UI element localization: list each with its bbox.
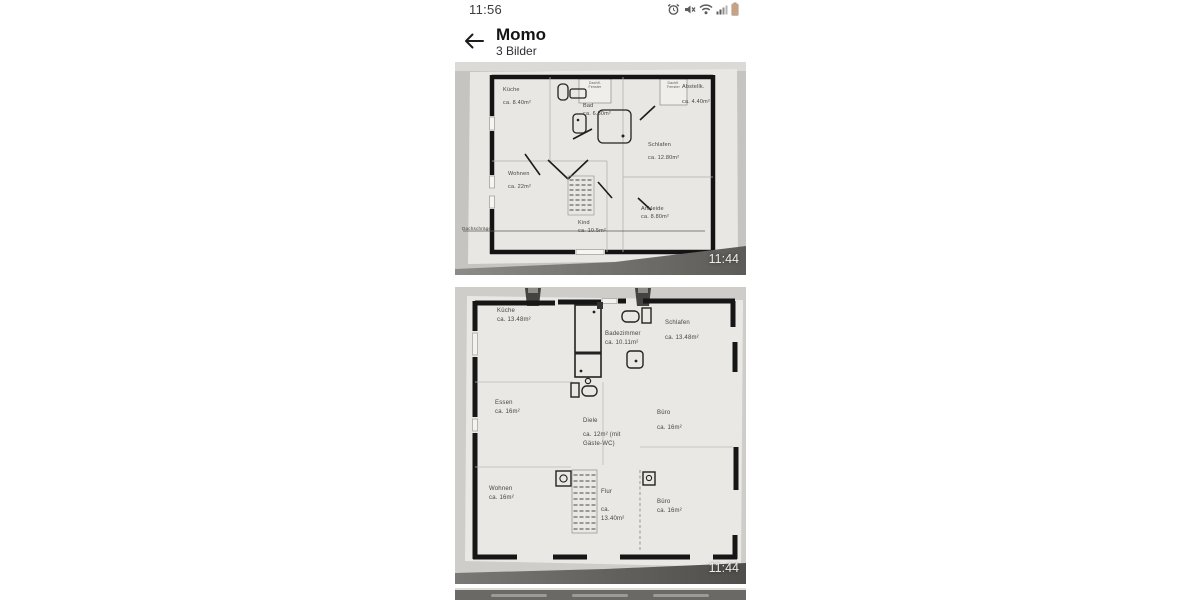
conversation-title: Momo <box>496 25 546 44</box>
back-button[interactable] <box>462 29 486 53</box>
room-label-schlafen-2: Schlafenca. 13.48m² <box>665 319 699 343</box>
roof-window-label-1: Dachfl.Fenster <box>581 81 609 90</box>
room-label-kueche-1: Kücheca. 8.40m² <box>503 86 531 108</box>
room-label-diele: Dieleca. 12m² (mitGäste-WC) <box>583 417 621 449</box>
message-timestamp-1: 11:44 <box>709 252 739 266</box>
conversation-subtitle: 3 Bilder <box>496 44 546 58</box>
photo-top-edge <box>455 588 746 590</box>
conversation-info[interactable]: Momo 3 Bilder <box>496 25 546 58</box>
room-label-abstell: Abstellk.ca. 4.40m² <box>682 83 710 107</box>
status-icons <box>667 2 739 16</box>
chat-header: Momo 3 Bilder <box>455 22 746 60</box>
phone-screen: 11:56 <box>455 0 746 600</box>
battery-icon <box>731 2 739 16</box>
room-label-ankleide: Ankleideca. 8.80m² <box>641 205 669 222</box>
status-bar: 11:56 <box>455 0 746 18</box>
room-label-kueche-2: Kücheca. 13.48m² <box>497 307 531 325</box>
photo-detail-bar <box>572 594 628 597</box>
label-dachschraege: Dachschräge <box>462 226 491 233</box>
room-label-schlafen-1: Schlafenca. 12.80m² <box>648 141 679 163</box>
room-label-wohnen-1: Wohnenca. 22m² <box>508 170 531 192</box>
mute-icon <box>683 3 696 16</box>
alarm-icon <box>667 3 680 16</box>
back-arrow-icon <box>464 33 484 49</box>
wifi-icon <box>699 3 713 15</box>
room-label-wohnen-2: Wohnenca. 16m² <box>489 485 514 503</box>
page: 11:56 <box>0 0 1200 600</box>
room-label-badezimmer: Badezimmerca. 10.11m² <box>605 330 641 348</box>
room-label-essen: Essenca. 16m² <box>495 399 520 417</box>
room-label-kind: Kindca. 10.5m² <box>578 219 606 236</box>
signal-icon <box>716 3 728 15</box>
photo-detail-bar <box>653 594 709 597</box>
status-time: 11:56 <box>469 2 502 17</box>
image-message-3[interactable] <box>455 588 746 600</box>
room-label-buero-1: Büroca. 16m² <box>657 409 682 433</box>
message-timestamp-2: 11:44 <box>709 561 739 575</box>
image-message-1[interactable]: Kücheca. 8.40m² Badca. 6.30m² Dachfl.Fen… <box>455 62 746 275</box>
room-label-bad: Badca. 6.30m² <box>583 102 611 119</box>
image-message-2[interactable]: Kücheca. 13.48m² Badezimmerca. 10.11m² S… <box>455 287 746 584</box>
room-label-buero-2: Büroca. 16m² <box>657 498 682 516</box>
room-label-flur: Flurca.13.40m² <box>601 488 624 524</box>
photo-detail-bar <box>491 594 547 597</box>
